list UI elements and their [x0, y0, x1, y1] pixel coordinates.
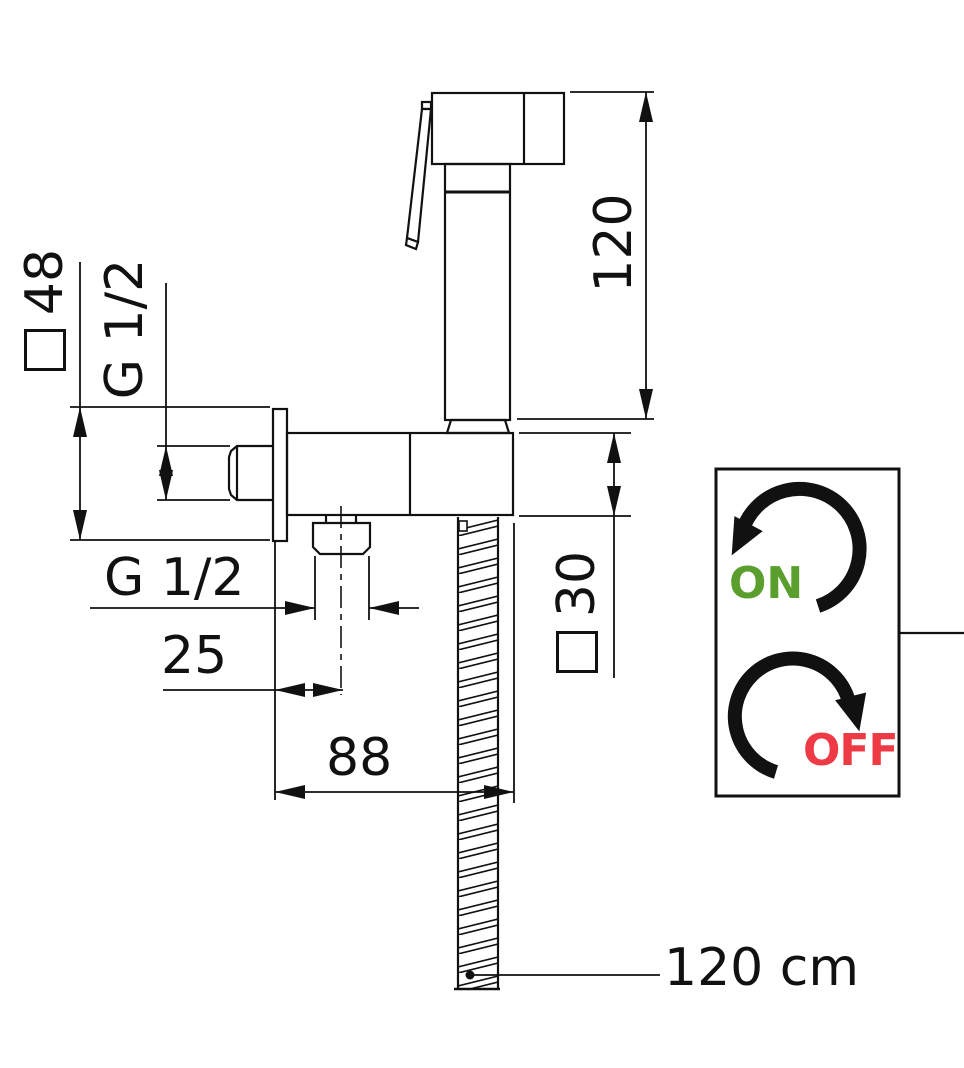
hose-clip: [459, 521, 467, 531]
dimension-lines: [70, 92, 660, 980]
shower-hose: [454, 517, 500, 989]
square-symbol-icon: [556, 631, 598, 673]
drawing-canvas: 48 G 1/2 120 30 G 1/2 25 88 120 cm ON OF…: [0, 0, 964, 1068]
plate-size-value: 48: [19, 249, 71, 315]
depth-label: 88: [326, 732, 392, 784]
body-size-label: 30: [551, 547, 603, 677]
shower-handle: [445, 164, 510, 420]
valve-body: [287, 433, 513, 515]
on-label: ON: [729, 562, 803, 606]
hand-shower: [406, 93, 564, 433]
dim-thread-top: [157, 283, 230, 500]
hose-length-label: 120 cm: [664, 942, 859, 994]
square-symbol-icon: [24, 329, 66, 371]
body-size-value: 30: [551, 551, 603, 617]
handle-connector-nut: [447, 420, 509, 433]
shower-trigger: [407, 109, 431, 242]
offset-label: 25: [161, 630, 227, 682]
thread-top-label: G 1/2: [99, 254, 151, 404]
inlet-nipple: [229, 446, 273, 500]
plate-size-label: 48: [19, 250, 71, 370]
height-label: 120: [588, 188, 640, 298]
shower-head: [432, 93, 564, 164]
thread-bottom-label: G 1/2: [104, 552, 245, 604]
off-label: OFF: [803, 729, 898, 773]
technical-drawing: [0, 0, 964, 1068]
hose-spiral: [458, 517, 498, 988]
wall-plate: [273, 409, 287, 541]
